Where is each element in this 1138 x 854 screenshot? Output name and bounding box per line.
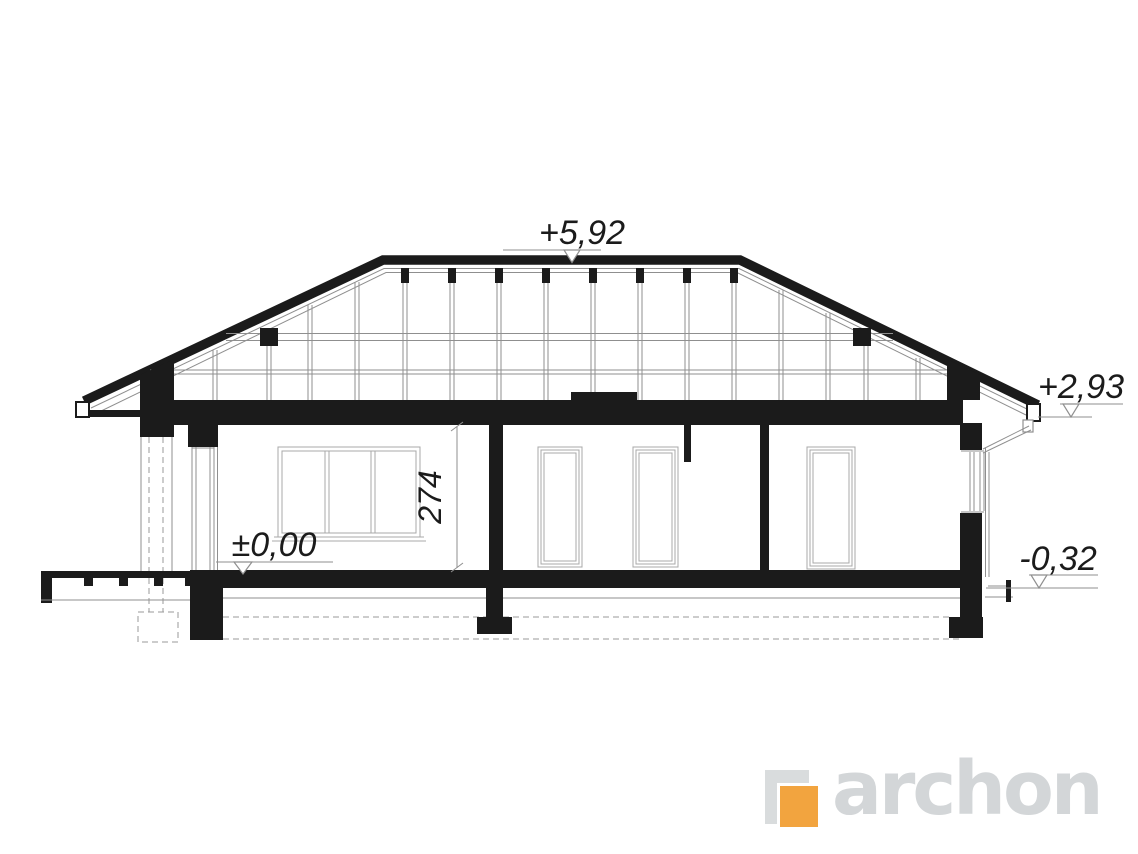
level-terrace-label: -0,32 [1019, 540, 1097, 578]
ceiling-slab [150, 392, 963, 425]
door-1 [538, 447, 582, 567]
footing-left [190, 570, 223, 640]
interior-wall-2 [760, 425, 769, 570]
left-wall-head [188, 425, 218, 447]
purlin-left [260, 328, 278, 346]
roof-sheathing [84, 260, 1038, 405]
datum-triangle-icon [1031, 575, 1047, 588]
porch-pillar [141, 437, 172, 571]
left-wall-glazing [192, 447, 218, 570]
attic-hatch [571, 392, 637, 401]
level-marker-eave: +2,93 [1038, 368, 1124, 417]
pillar-footing [138, 612, 178, 642]
footing-center [477, 617, 512, 634]
archon-logo: archon [762, 766, 1112, 846]
level-marker-floor: ±0,00 [216, 526, 333, 574]
terrace-right [985, 580, 1013, 602]
level-ridge-label: +5,92 [539, 214, 625, 252]
dimension-274-label: 274 [412, 470, 448, 524]
archon-logo-text: archon [832, 752, 1101, 826]
house-cross-section: 274 +5,92 +2,93 ±0,00 -0,32 [0, 0, 1138, 854]
datum-triangle-icon [1063, 404, 1079, 417]
roof-truss [150, 268, 969, 400]
dimension-room-height: 274 [412, 422, 463, 572]
purlin-right [853, 328, 871, 346]
right-wall-lower [960, 513, 982, 572]
floor-slab [192, 570, 963, 588]
terrace-left [41, 571, 195, 603]
drawing-canvas: 274 +5,92 +2,93 ±0,00 -0,32 archon [0, 0, 1138, 854]
right-wall-window [961, 451, 984, 512]
door-header [684, 425, 691, 462]
door-3 [807, 447, 855, 569]
door-2 [633, 447, 678, 567]
level-marker-terrace: -0,32 [986, 540, 1098, 588]
gutter-right-icon [983, 404, 1040, 453]
level-marker-ridge: +5,92 [503, 214, 625, 263]
level-floor-label: ±0,00 [232, 526, 317, 564]
interior-wall-1 [489, 425, 503, 570]
footing-right [949, 617, 983, 638]
level-eave-label: +2,93 [1038, 368, 1124, 406]
right-wall-upper [960, 423, 982, 450]
